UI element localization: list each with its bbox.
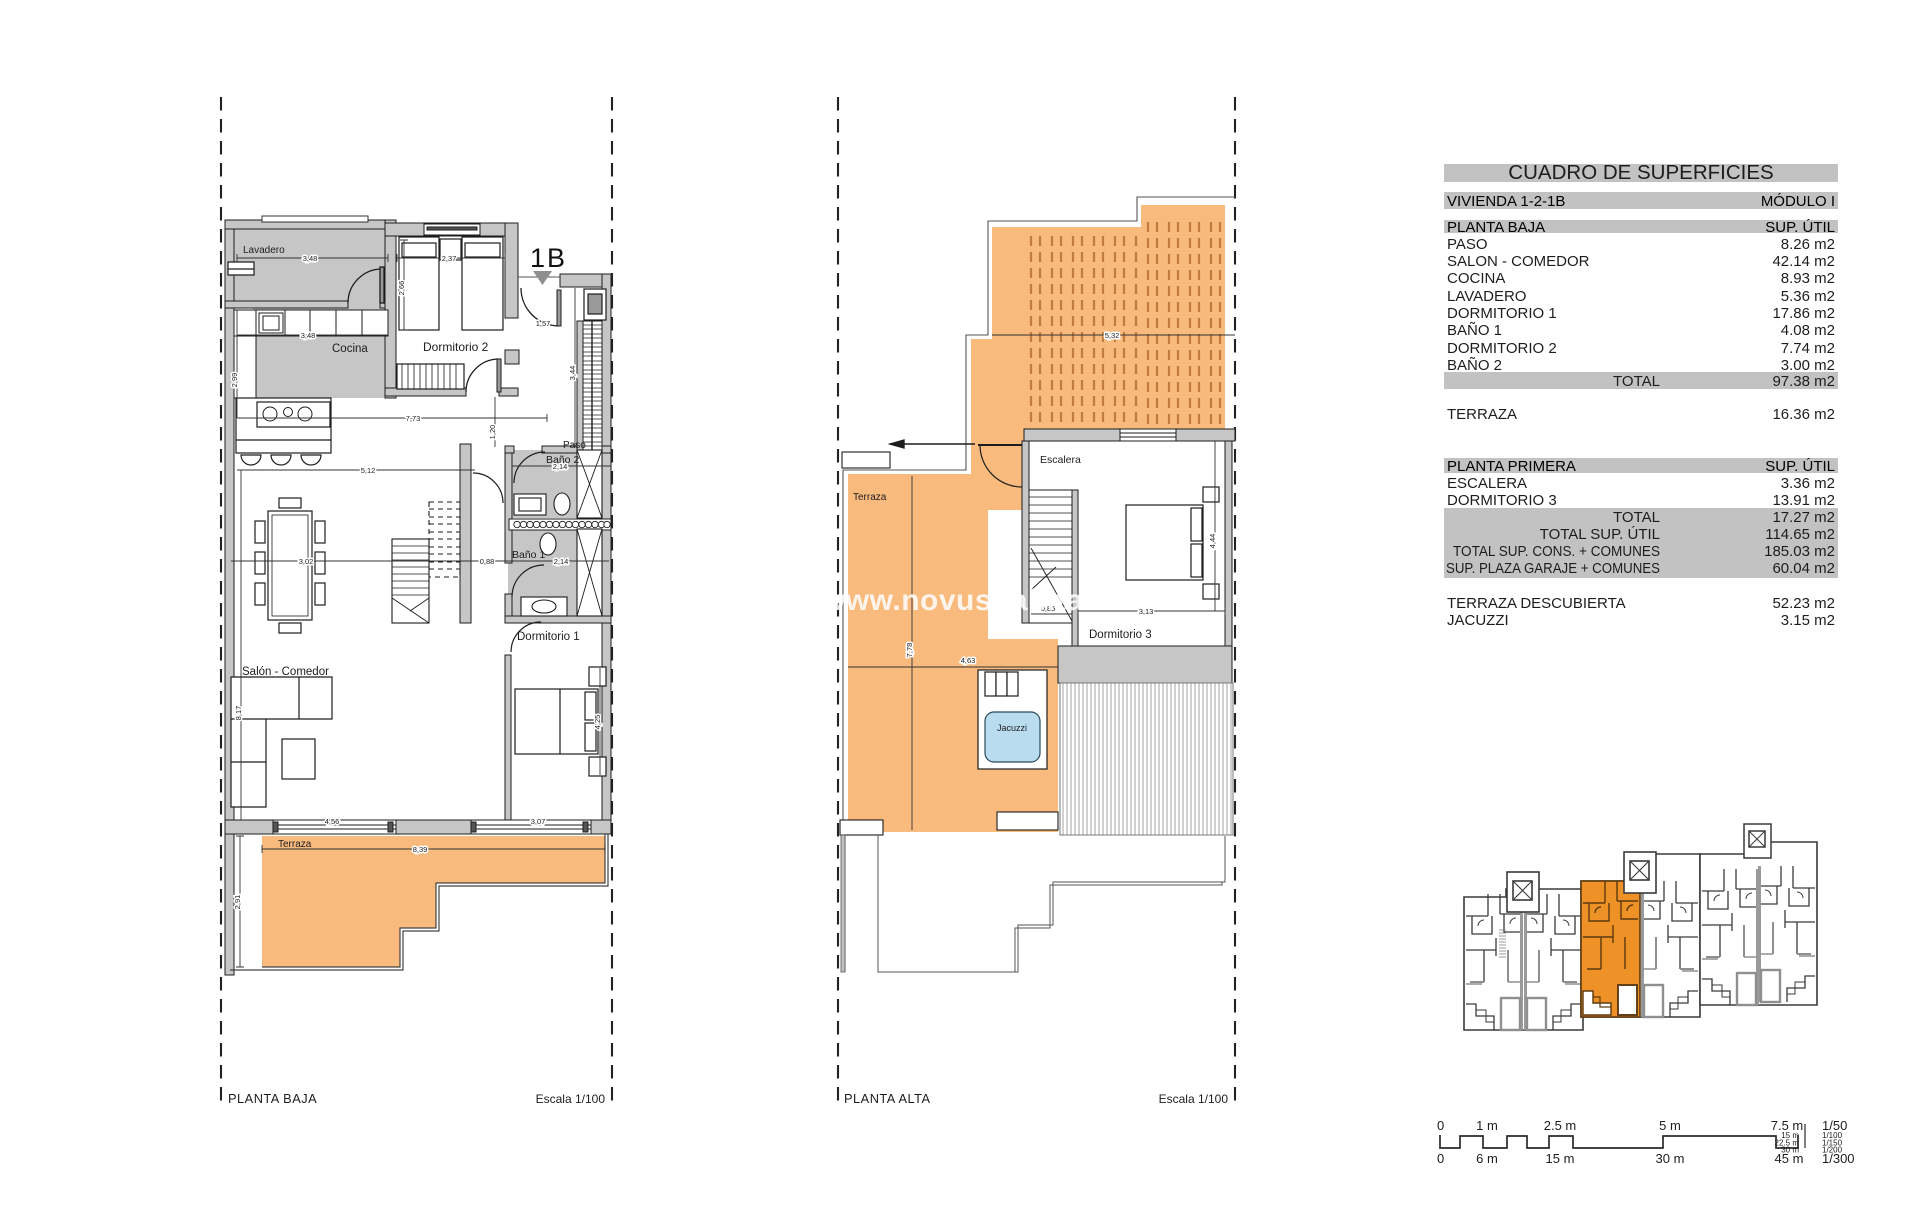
svg-text:17.86 m2: 17.86 m2 xyxy=(1772,305,1835,322)
svg-text:0: 0 xyxy=(1437,1151,1444,1166)
svg-text:2,14: 2,14 xyxy=(554,557,569,566)
svg-text:1 m: 1 m xyxy=(1476,1118,1498,1133)
svg-text:3.00 m2: 3.00 m2 xyxy=(1781,357,1835,374)
svg-text:Baño 1: Baño 1 xyxy=(512,549,545,561)
svg-text:Salón - Comedor: Salón - Comedor xyxy=(242,666,329,678)
svg-text:www.novushabitat.c: www.novushabitat.c xyxy=(821,584,1120,617)
svg-text:SUP. ÚTIL: SUP. ÚTIL xyxy=(1765,458,1835,475)
svg-text:1,57: 1,57 xyxy=(536,319,551,328)
svg-text:PLANTA PRIMERA: PLANTA PRIMERA xyxy=(1447,458,1576,475)
svg-text:4,44: 4,44 xyxy=(1208,534,1217,549)
svg-text:30 m: 30 m xyxy=(1781,1146,1799,1155)
svg-text:CUADRO DE SUPERFICIES: CUADRO DE SUPERFICIES xyxy=(1508,161,1773,184)
svg-text:VIVIENDA 1-2-1B: VIVIENDA 1-2-1B xyxy=(1447,193,1565,210)
svg-text:8,39: 8,39 xyxy=(413,845,428,854)
svg-text:TERRAZA: TERRAZA xyxy=(1447,406,1517,423)
svg-text:DORMITORIO 2: DORMITORIO 2 xyxy=(1447,340,1557,357)
svg-text:Dormitorio 2: Dormitorio 2 xyxy=(423,340,489,354)
svg-text:4,25: 4,25 xyxy=(593,715,602,730)
svg-text:30 m: 30 m xyxy=(1656,1151,1685,1166)
svg-text:Dormitorio 1: Dormitorio 1 xyxy=(517,631,580,643)
svg-text:5,32: 5,32 xyxy=(1105,331,1120,340)
svg-text:COCINA: COCINA xyxy=(1447,270,1505,287)
svg-text:2.5 m: 2.5 m xyxy=(1544,1118,1577,1133)
svg-text:3,44: 3,44 xyxy=(568,366,577,381)
svg-text:1B: 1B xyxy=(530,243,567,273)
svg-text:DORMITORIO 1: DORMITORIO 1 xyxy=(1447,305,1557,322)
svg-text:3,48: 3,48 xyxy=(303,254,318,263)
svg-text:Jacuzzi: Jacuzzi xyxy=(997,723,1027,733)
svg-text:PASO: PASO xyxy=(1447,236,1488,253)
svg-text:PLANTA BAJA: PLANTA BAJA xyxy=(228,1091,317,1106)
svg-text:5 m: 5 m xyxy=(1659,1118,1681,1133)
svg-text:3.36 m2: 3.36 m2 xyxy=(1781,475,1835,492)
svg-text:0: 0 xyxy=(1437,1118,1444,1133)
svg-text:42.14 m2: 42.14 m2 xyxy=(1772,253,1835,270)
svg-text:17.27 m2: 17.27 m2 xyxy=(1772,509,1835,526)
svg-text:97.38 m2: 97.38 m2 xyxy=(1772,373,1835,390)
svg-text:114.65 m2: 114.65 m2 xyxy=(1765,526,1835,543)
svg-text:TOTAL: TOTAL xyxy=(1613,373,1660,390)
svg-text:ESCALERA: ESCALERA xyxy=(1447,475,1527,492)
svg-text:13.91 m2: 13.91 m2 xyxy=(1772,492,1835,509)
svg-text:1/200: 1/200 xyxy=(1822,1146,1843,1155)
svg-text:8.26 m2: 8.26 m2 xyxy=(1781,236,1835,253)
svg-text:8,17: 8,17 xyxy=(234,706,243,721)
svg-text:SUP. PLAZA GARAJE + COMUNES: SUP. PLAZA GARAJE + COMUNES xyxy=(1446,560,1660,577)
svg-text:7,73: 7,73 xyxy=(406,414,421,423)
svg-text:PLANTA ALTA: PLANTA ALTA xyxy=(844,1091,931,1106)
svg-text:Lavadero: Lavadero xyxy=(243,245,285,256)
svg-text:3,02: 3,02 xyxy=(299,557,314,566)
svg-text:SALON - COMEDOR: SALON - COMEDOR xyxy=(1447,253,1590,270)
svg-text:2,91: 2,91 xyxy=(233,895,242,910)
svg-text:3,13: 3,13 xyxy=(1139,607,1154,616)
svg-text:BAÑO 2: BAÑO 2 xyxy=(1447,357,1502,374)
svg-text:TERRAZA DESCUBIERTA: TERRAZA DESCUBIERTA xyxy=(1447,595,1626,612)
svg-text:1,20: 1,20 xyxy=(488,425,497,440)
svg-text:4,56: 4,56 xyxy=(325,817,340,826)
svg-text:Cocina: Cocina xyxy=(332,343,368,355)
svg-text:5,12: 5,12 xyxy=(361,466,376,475)
svg-text:2,66: 2,66 xyxy=(397,281,406,296)
svg-text:TOTAL: TOTAL xyxy=(1613,509,1660,526)
svg-text:Paso: Paso xyxy=(563,440,586,451)
svg-text:185.03 m2: 185.03 m2 xyxy=(1764,543,1835,560)
svg-text:5.36 m2: 5.36 m2 xyxy=(1781,288,1835,305)
svg-text:PLANTA BAJA: PLANTA BAJA xyxy=(1447,219,1545,236)
svg-text:Baño 2: Baño 2 xyxy=(546,454,579,466)
svg-text:Dormitorio 3: Dormitorio 3 xyxy=(1089,629,1152,641)
svg-text:Escala 1/100: Escala 1/100 xyxy=(1159,1092,1229,1106)
svg-text:8.93 m2: 8.93 m2 xyxy=(1781,270,1835,287)
svg-text:7.74 m2: 7.74 m2 xyxy=(1781,340,1835,357)
svg-text:DORMITORIO 3: DORMITORIO 3 xyxy=(1447,492,1557,509)
svg-text:TOTAL SUP. CONS. + COMUNES: TOTAL SUP. CONS. + COMUNES xyxy=(1453,543,1660,560)
svg-text:JACUZZI: JACUZZI xyxy=(1447,612,1509,629)
svg-text:Terraza: Terraza xyxy=(853,492,887,503)
svg-text:15 m: 15 m xyxy=(1546,1151,1575,1166)
svg-text:4,63: 4,63 xyxy=(961,656,976,665)
svg-text:52.23 m2: 52.23 m2 xyxy=(1772,595,1835,612)
svg-text:SUP. ÚTIL: SUP. ÚTIL xyxy=(1765,219,1835,236)
svg-text:60.04 m2: 60.04 m2 xyxy=(1772,560,1835,577)
svg-text:7,78: 7,78 xyxy=(905,643,914,658)
svg-text:3,48: 3,48 xyxy=(301,331,316,340)
svg-text:0,88: 0,88 xyxy=(480,557,495,566)
svg-text:TOTAL SUP. ÚTIL: TOTAL SUP. ÚTIL xyxy=(1540,526,1660,543)
svg-text:2,99: 2,99 xyxy=(230,373,239,388)
svg-text:Escalera: Escalera xyxy=(1040,454,1081,466)
svg-text:Escala 1/100: Escala 1/100 xyxy=(536,1092,606,1106)
svg-text:MÓDULO I: MÓDULO I xyxy=(1761,193,1835,210)
svg-text:16.36 m2: 16.36 m2 xyxy=(1772,406,1835,423)
svg-text:3.15 m2: 3.15 m2 xyxy=(1781,612,1835,629)
svg-text:3,07: 3,07 xyxy=(531,817,546,826)
svg-text:2,37: 2,37 xyxy=(442,254,457,263)
svg-text:6 m: 6 m xyxy=(1476,1151,1498,1166)
svg-text:Terraza: Terraza xyxy=(278,839,312,850)
svg-text:BAÑO 1: BAÑO 1 xyxy=(1447,322,1502,339)
svg-text:LAVADERO: LAVADERO xyxy=(1447,288,1526,305)
svg-text:4.08 m2: 4.08 m2 xyxy=(1781,322,1835,339)
